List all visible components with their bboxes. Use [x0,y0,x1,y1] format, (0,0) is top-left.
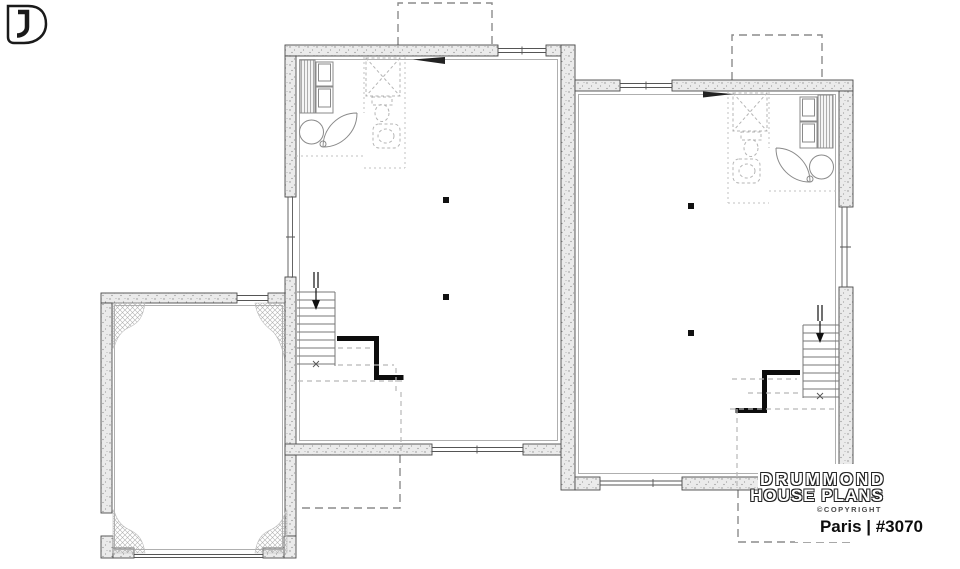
floor-plan-canvas: DRUMMOND HOUSE PLANS ©COPYRIGHT Paris | … [0,0,960,569]
bathroom-fixtures-left [296,57,405,168]
door-swing [323,113,357,147]
vanity-future [733,159,760,183]
stairs-left [297,272,404,455]
washer-dryer [800,97,817,148]
bathroom-fixtures-right [728,92,837,203]
water-heater [300,120,327,147]
garage [101,293,296,558]
unexcavated-corner-hatch [113,303,287,553]
brand-copyright: ©COPYRIGHT [790,505,882,514]
window-right-wall [840,207,851,287]
vanity-future [373,124,400,148]
shower-future [366,58,400,96]
shower-future [733,93,767,131]
toilet-future [741,132,761,157]
stair-direction-arrow-icon [312,272,320,310]
drummond-logo-icon [0,0,48,48]
door-swing [776,148,810,182]
basement-window-marker-left [413,57,445,64]
porch-outline-bottom-left [297,455,400,508]
garage-entry-opening [237,296,268,301]
plan-title: Paris | #3070 [775,517,923,537]
window-top-right-room [620,82,672,90]
shelving-unit [300,60,315,113]
main-room-left [285,45,575,490]
toilet-future [372,97,392,122]
stairs-right [730,305,839,490]
window-bottom-right-room [600,479,682,487]
window-left-wall [286,197,295,277]
stair-half-wall [337,339,404,378]
stair-direction-arrow-icon [816,305,824,343]
window-top-left-room [498,47,546,55]
water-heater [807,155,834,182]
garage-door [134,555,263,558]
washer-dryer [316,62,333,113]
stair-break-mark [817,393,823,399]
shelving-unit [818,95,833,148]
stair-half-wall [736,373,801,411]
window-bottom-left-room [432,446,523,454]
porch-outline-top-right [732,35,822,80]
porch-outline-top-left [398,3,492,45]
brand-name-line2: HOUSE PLANS [748,486,886,506]
